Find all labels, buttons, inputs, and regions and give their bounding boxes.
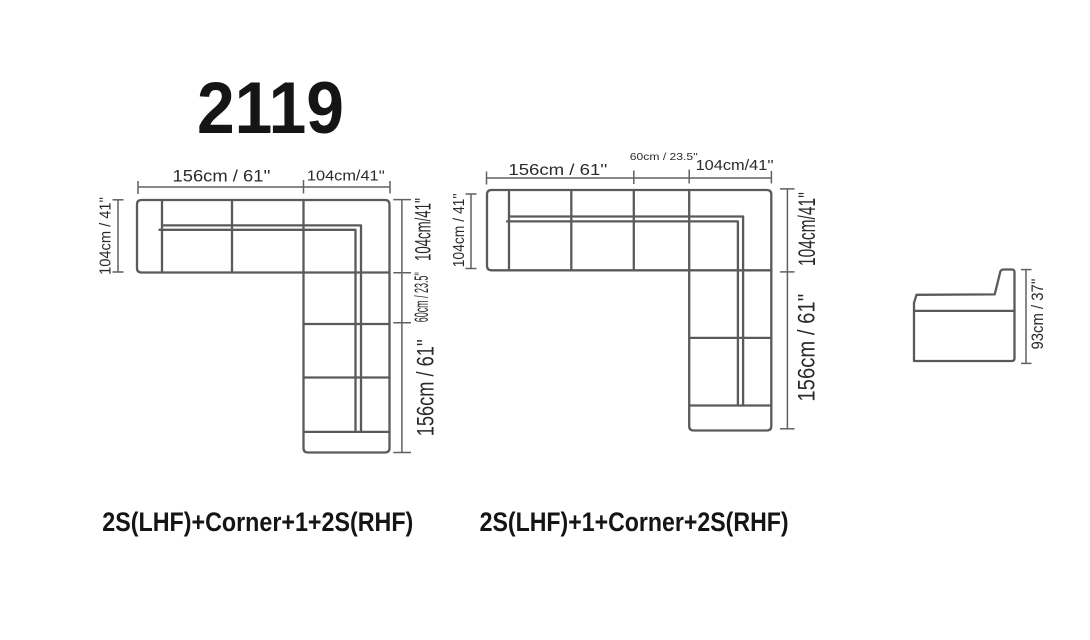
svg-text:2S(LHF)+Corner+1+2S(RHF): 2S(LHF)+Corner+1+2S(RHF) xyxy=(102,507,413,537)
svg-text:104cm/41'': 104cm/41'' xyxy=(307,169,385,185)
svg-text:104cm/41'': 104cm/41'' xyxy=(696,158,774,174)
svg-text:60cm / 23.5'': 60cm / 23.5'' xyxy=(630,151,698,163)
svg-text:2S(LHF)+1+Corner+2S(RHF): 2S(LHF)+1+Corner+2S(RHF) xyxy=(480,507,789,537)
svg-text:104cm / 41'': 104cm / 41'' xyxy=(451,193,468,267)
svg-text:104cm / 41'': 104cm / 41'' xyxy=(97,197,114,275)
svg-text:60cm / 23.5'': 60cm / 23.5'' xyxy=(412,272,433,322)
svg-text:156cm / 61'': 156cm / 61'' xyxy=(413,339,440,436)
svg-text:93cm / 37'': 93cm / 37'' xyxy=(1028,279,1047,350)
svg-text:104cm/41'': 104cm/41'' xyxy=(794,192,821,266)
svg-text:2119: 2119 xyxy=(197,66,344,149)
svg-text:156cm / 61'': 156cm / 61'' xyxy=(173,167,271,185)
svg-text:104cm/41'': 104cm/41'' xyxy=(411,198,436,261)
svg-text:156cm / 61'': 156cm / 61'' xyxy=(794,294,821,402)
svg-text:156cm / 61'': 156cm / 61'' xyxy=(508,162,607,179)
